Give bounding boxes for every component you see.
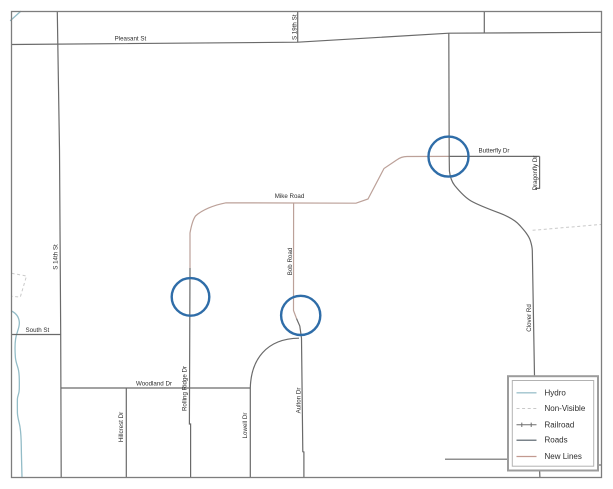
svg-text:South St: South St (26, 327, 50, 334)
svg-text:Bob Road: Bob Road (287, 247, 294, 275)
svg-text:Pleasant St: Pleasant St (115, 36, 147, 43)
svg-text:Butterfly Dr: Butterfly Dr (479, 148, 510, 155)
svg-text:S 14th St: S 14th St (53, 244, 60, 270)
svg-text:Aulton Dr: Aulton Dr (295, 388, 302, 414)
svg-text:Clover Rd: Clover Rd (526, 304, 533, 332)
svg-text:Hydro: Hydro (545, 388, 567, 397)
svg-text:Roads: Roads (545, 436, 568, 445)
svg-text:Woodland Dr: Woodland Dr (136, 381, 172, 388)
svg-text:Non-Visible: Non-Visible (545, 404, 586, 413)
svg-text:Railroad: Railroad (545, 420, 575, 429)
svg-text:Hillcrest Dr: Hillcrest Dr (118, 412, 125, 442)
svg-text:S 19th St: S 19th St (291, 14, 298, 40)
svg-text:Mike Road: Mike Road (275, 193, 305, 200)
svg-text:Lowell Dr: Lowell Dr (242, 413, 249, 439)
svg-text:Rolling Ridge Dr: Rolling Ridge Dr (181, 366, 188, 411)
svg-text:New Lines: New Lines (545, 452, 582, 461)
svg-text:Dragonfly Dr: Dragonfly Dr (532, 156, 539, 191)
